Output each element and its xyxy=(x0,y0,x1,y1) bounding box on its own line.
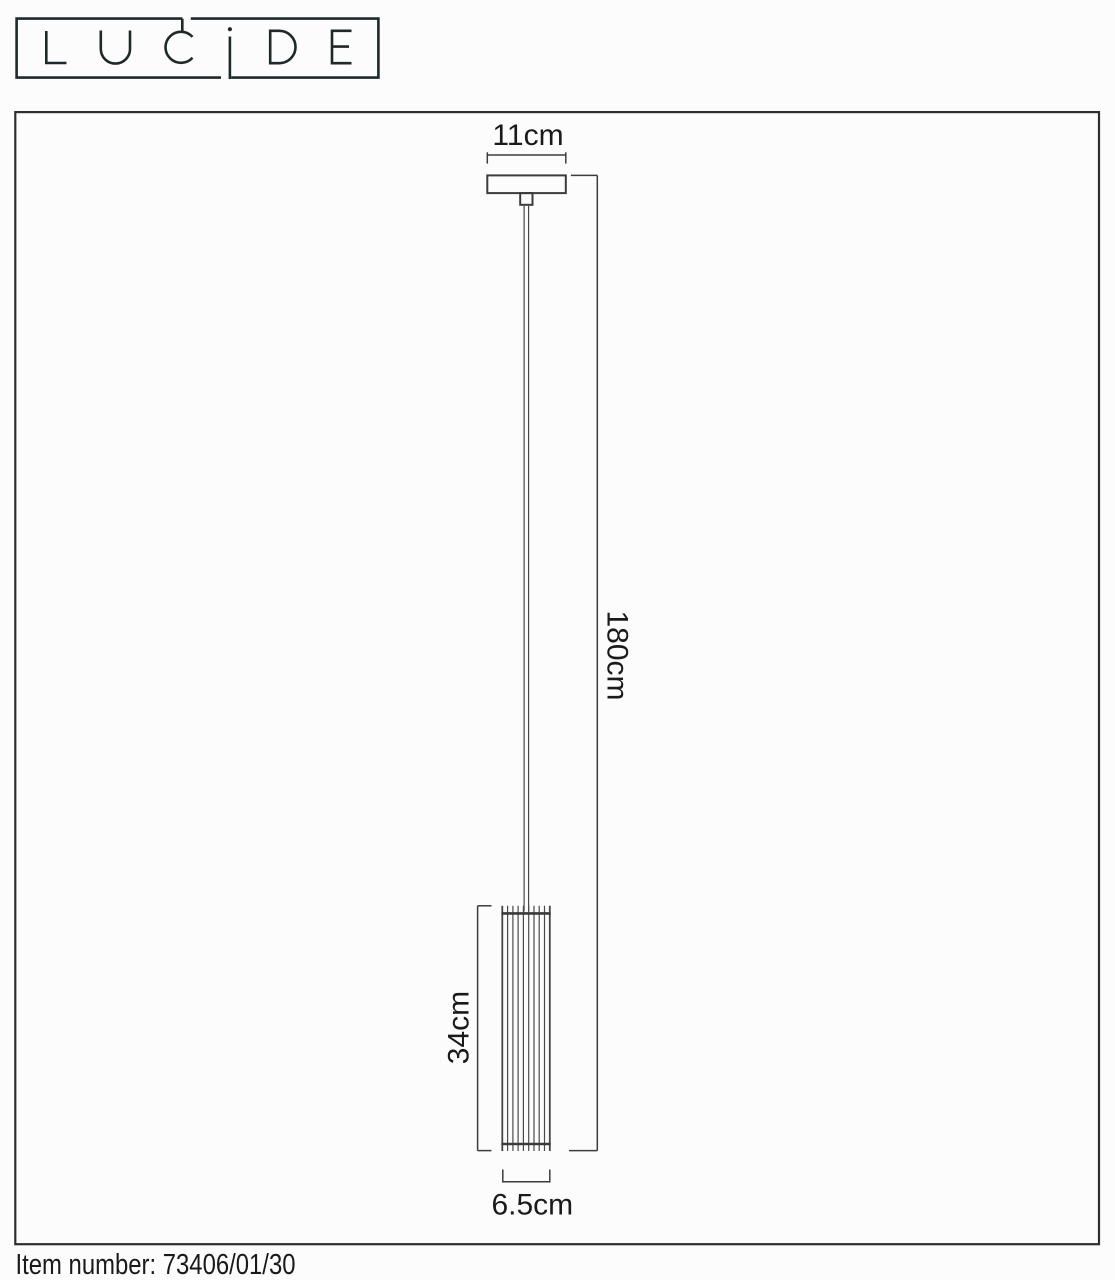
svg-text:180cm: 180cm xyxy=(601,610,634,700)
svg-text:11cm: 11cm xyxy=(492,119,563,152)
svg-text:34cm: 34cm xyxy=(443,991,476,1064)
svg-text:6.5cm: 6.5cm xyxy=(491,1189,573,1222)
svg-text:Item number: 73406/01/30: Item number: 73406/01/30 xyxy=(16,1249,296,1280)
